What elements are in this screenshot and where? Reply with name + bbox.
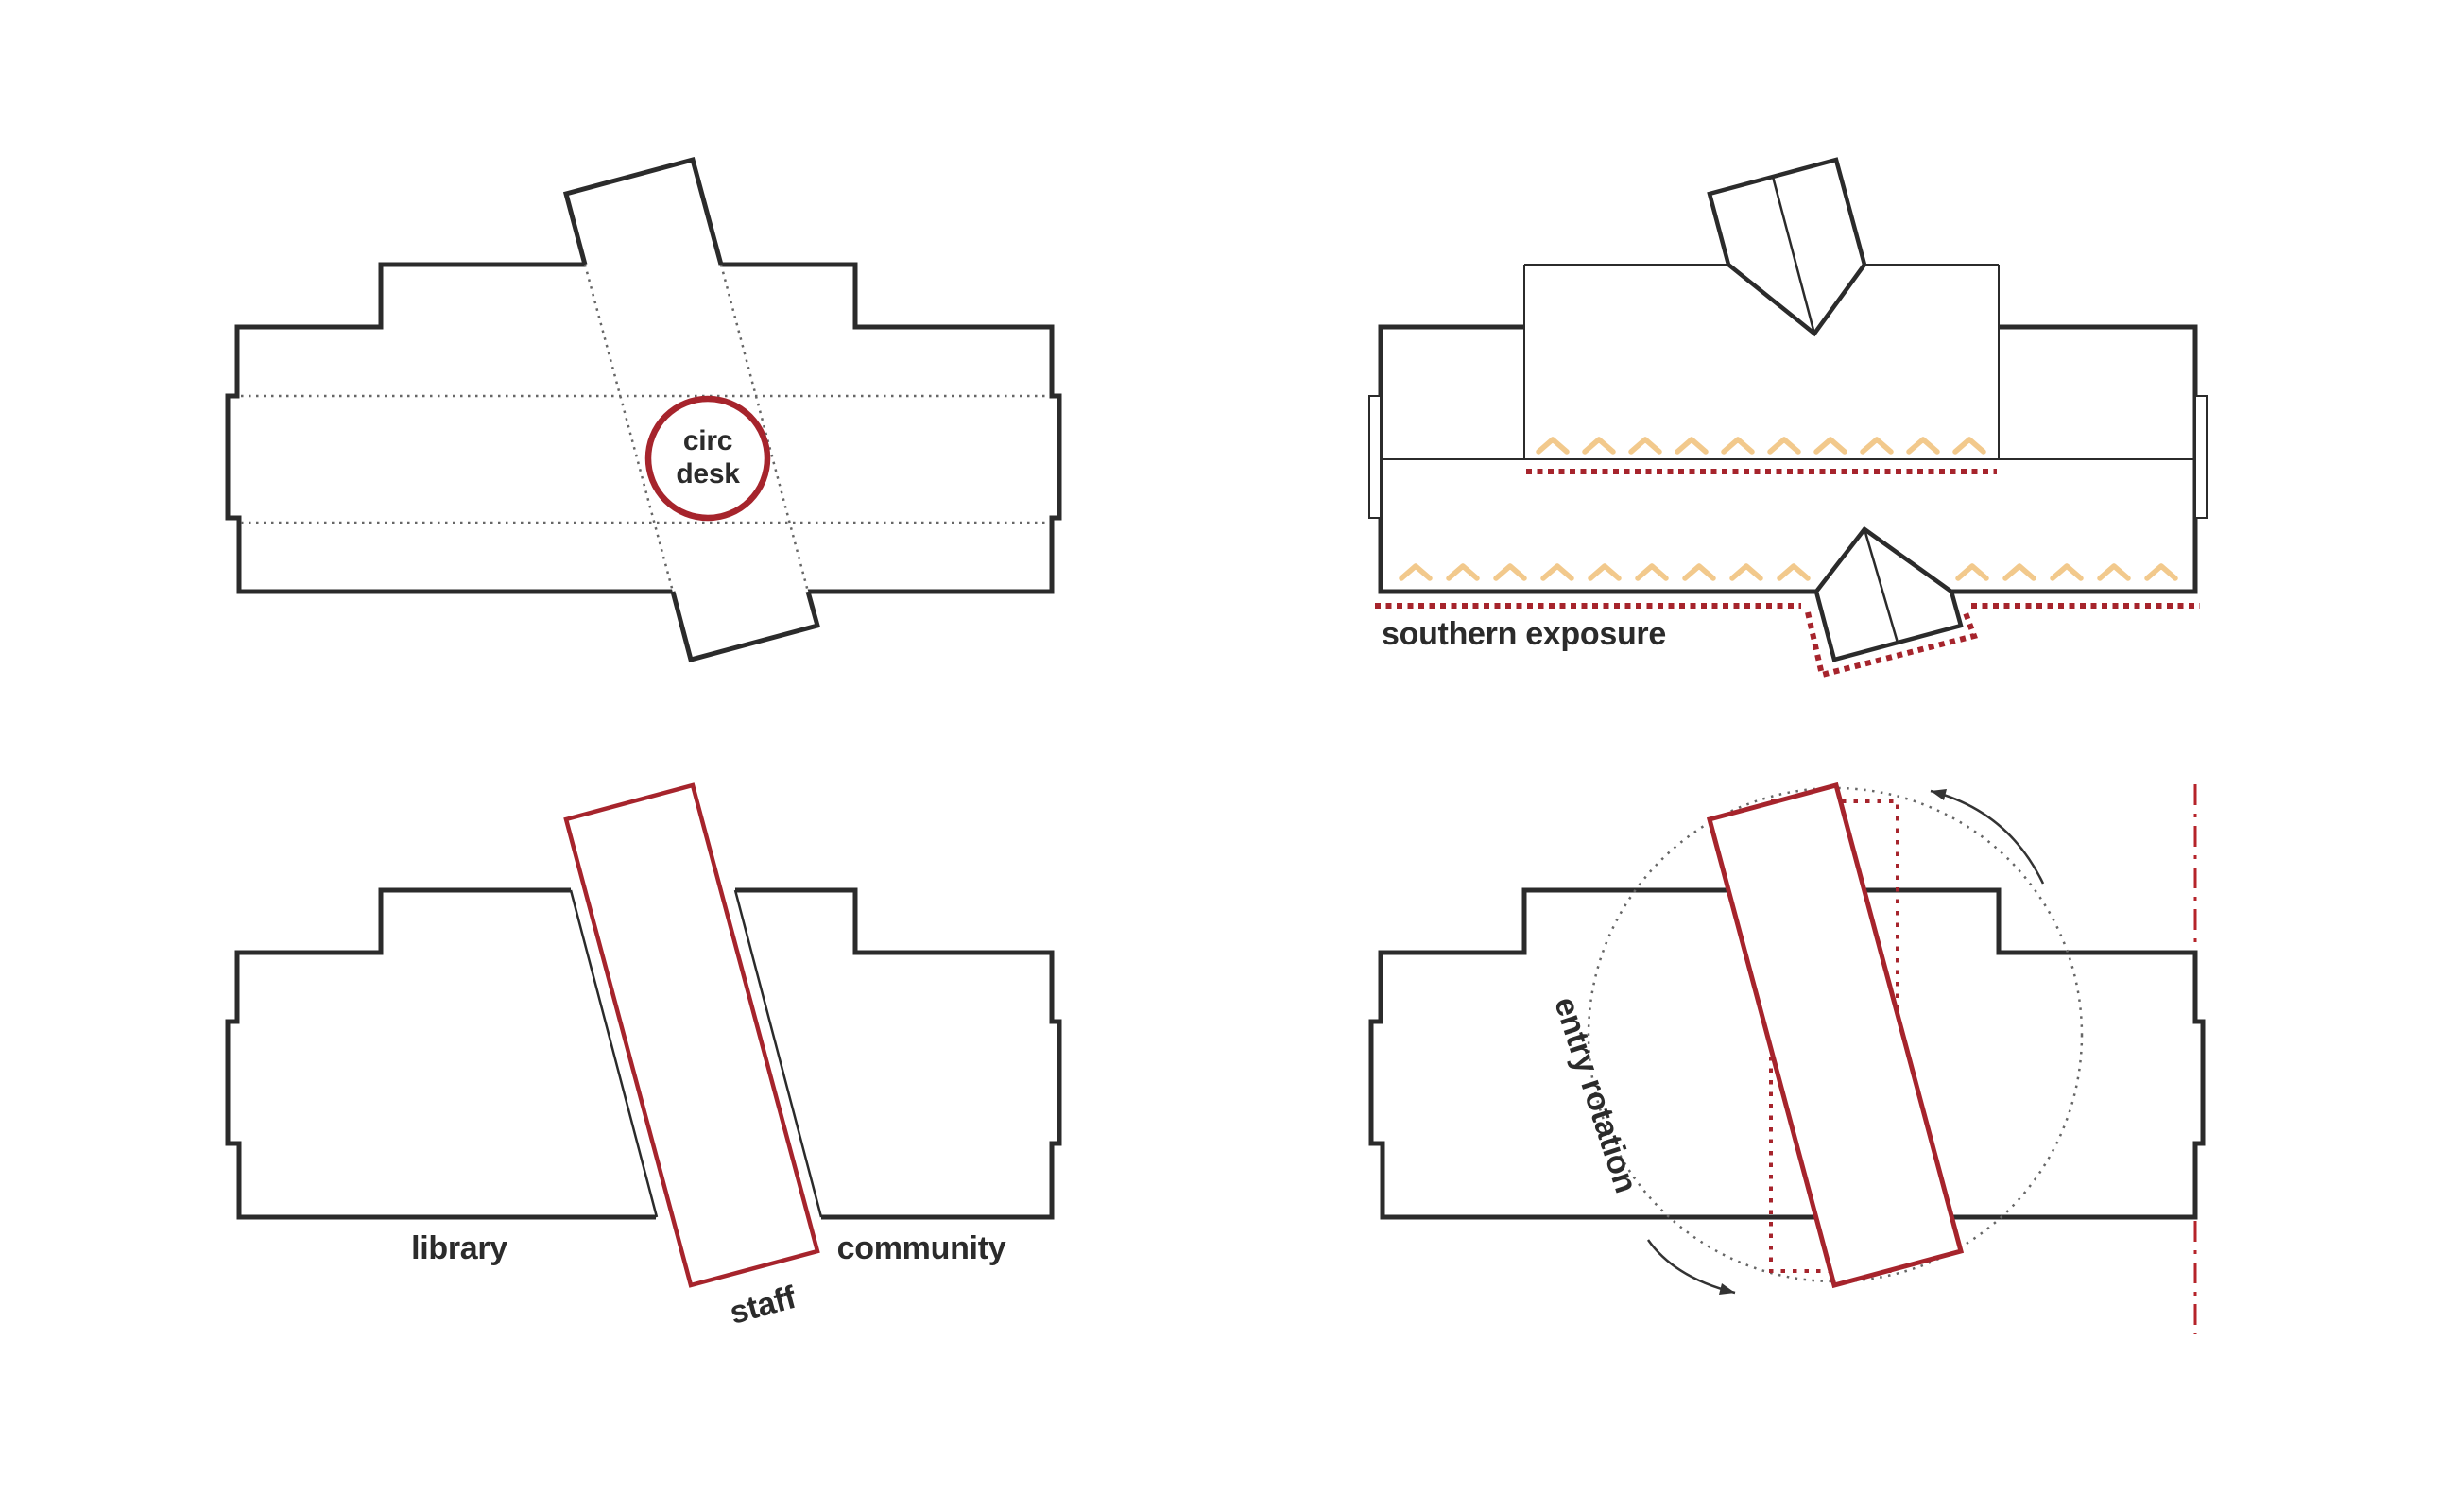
left-edge-opening xyxy=(1369,396,1381,518)
architecture-diagram: circ desk southern exposure library comm… xyxy=(0,0,2457,1512)
rotation-arrow-bottom-head xyxy=(1719,1283,1735,1295)
panel-entry-rotation: entry rotation xyxy=(1371,784,2203,1334)
staff-label: staff xyxy=(726,1280,800,1332)
panel-program-split: library community staff xyxy=(228,785,1059,1332)
panel-circulation-plan: circ desk xyxy=(228,160,1059,660)
architecture-diagram-page: circ desk southern exposure library comm… xyxy=(0,0,2457,1512)
library-label: library xyxy=(411,1230,507,1266)
right-edge-opening xyxy=(2195,396,2207,518)
circ-desk-label-line2: desk xyxy=(676,458,740,490)
community-label: community xyxy=(837,1230,1006,1266)
southern-exposure-label: southern exposure xyxy=(1382,616,1666,652)
rotation-arrow-top-arc xyxy=(1931,791,2043,884)
circ-desk-label-line1: circ xyxy=(683,425,732,456)
panel-southern-exposure: southern exposure xyxy=(1369,160,2207,675)
rotation-arrow-top-head xyxy=(1931,789,1947,800)
